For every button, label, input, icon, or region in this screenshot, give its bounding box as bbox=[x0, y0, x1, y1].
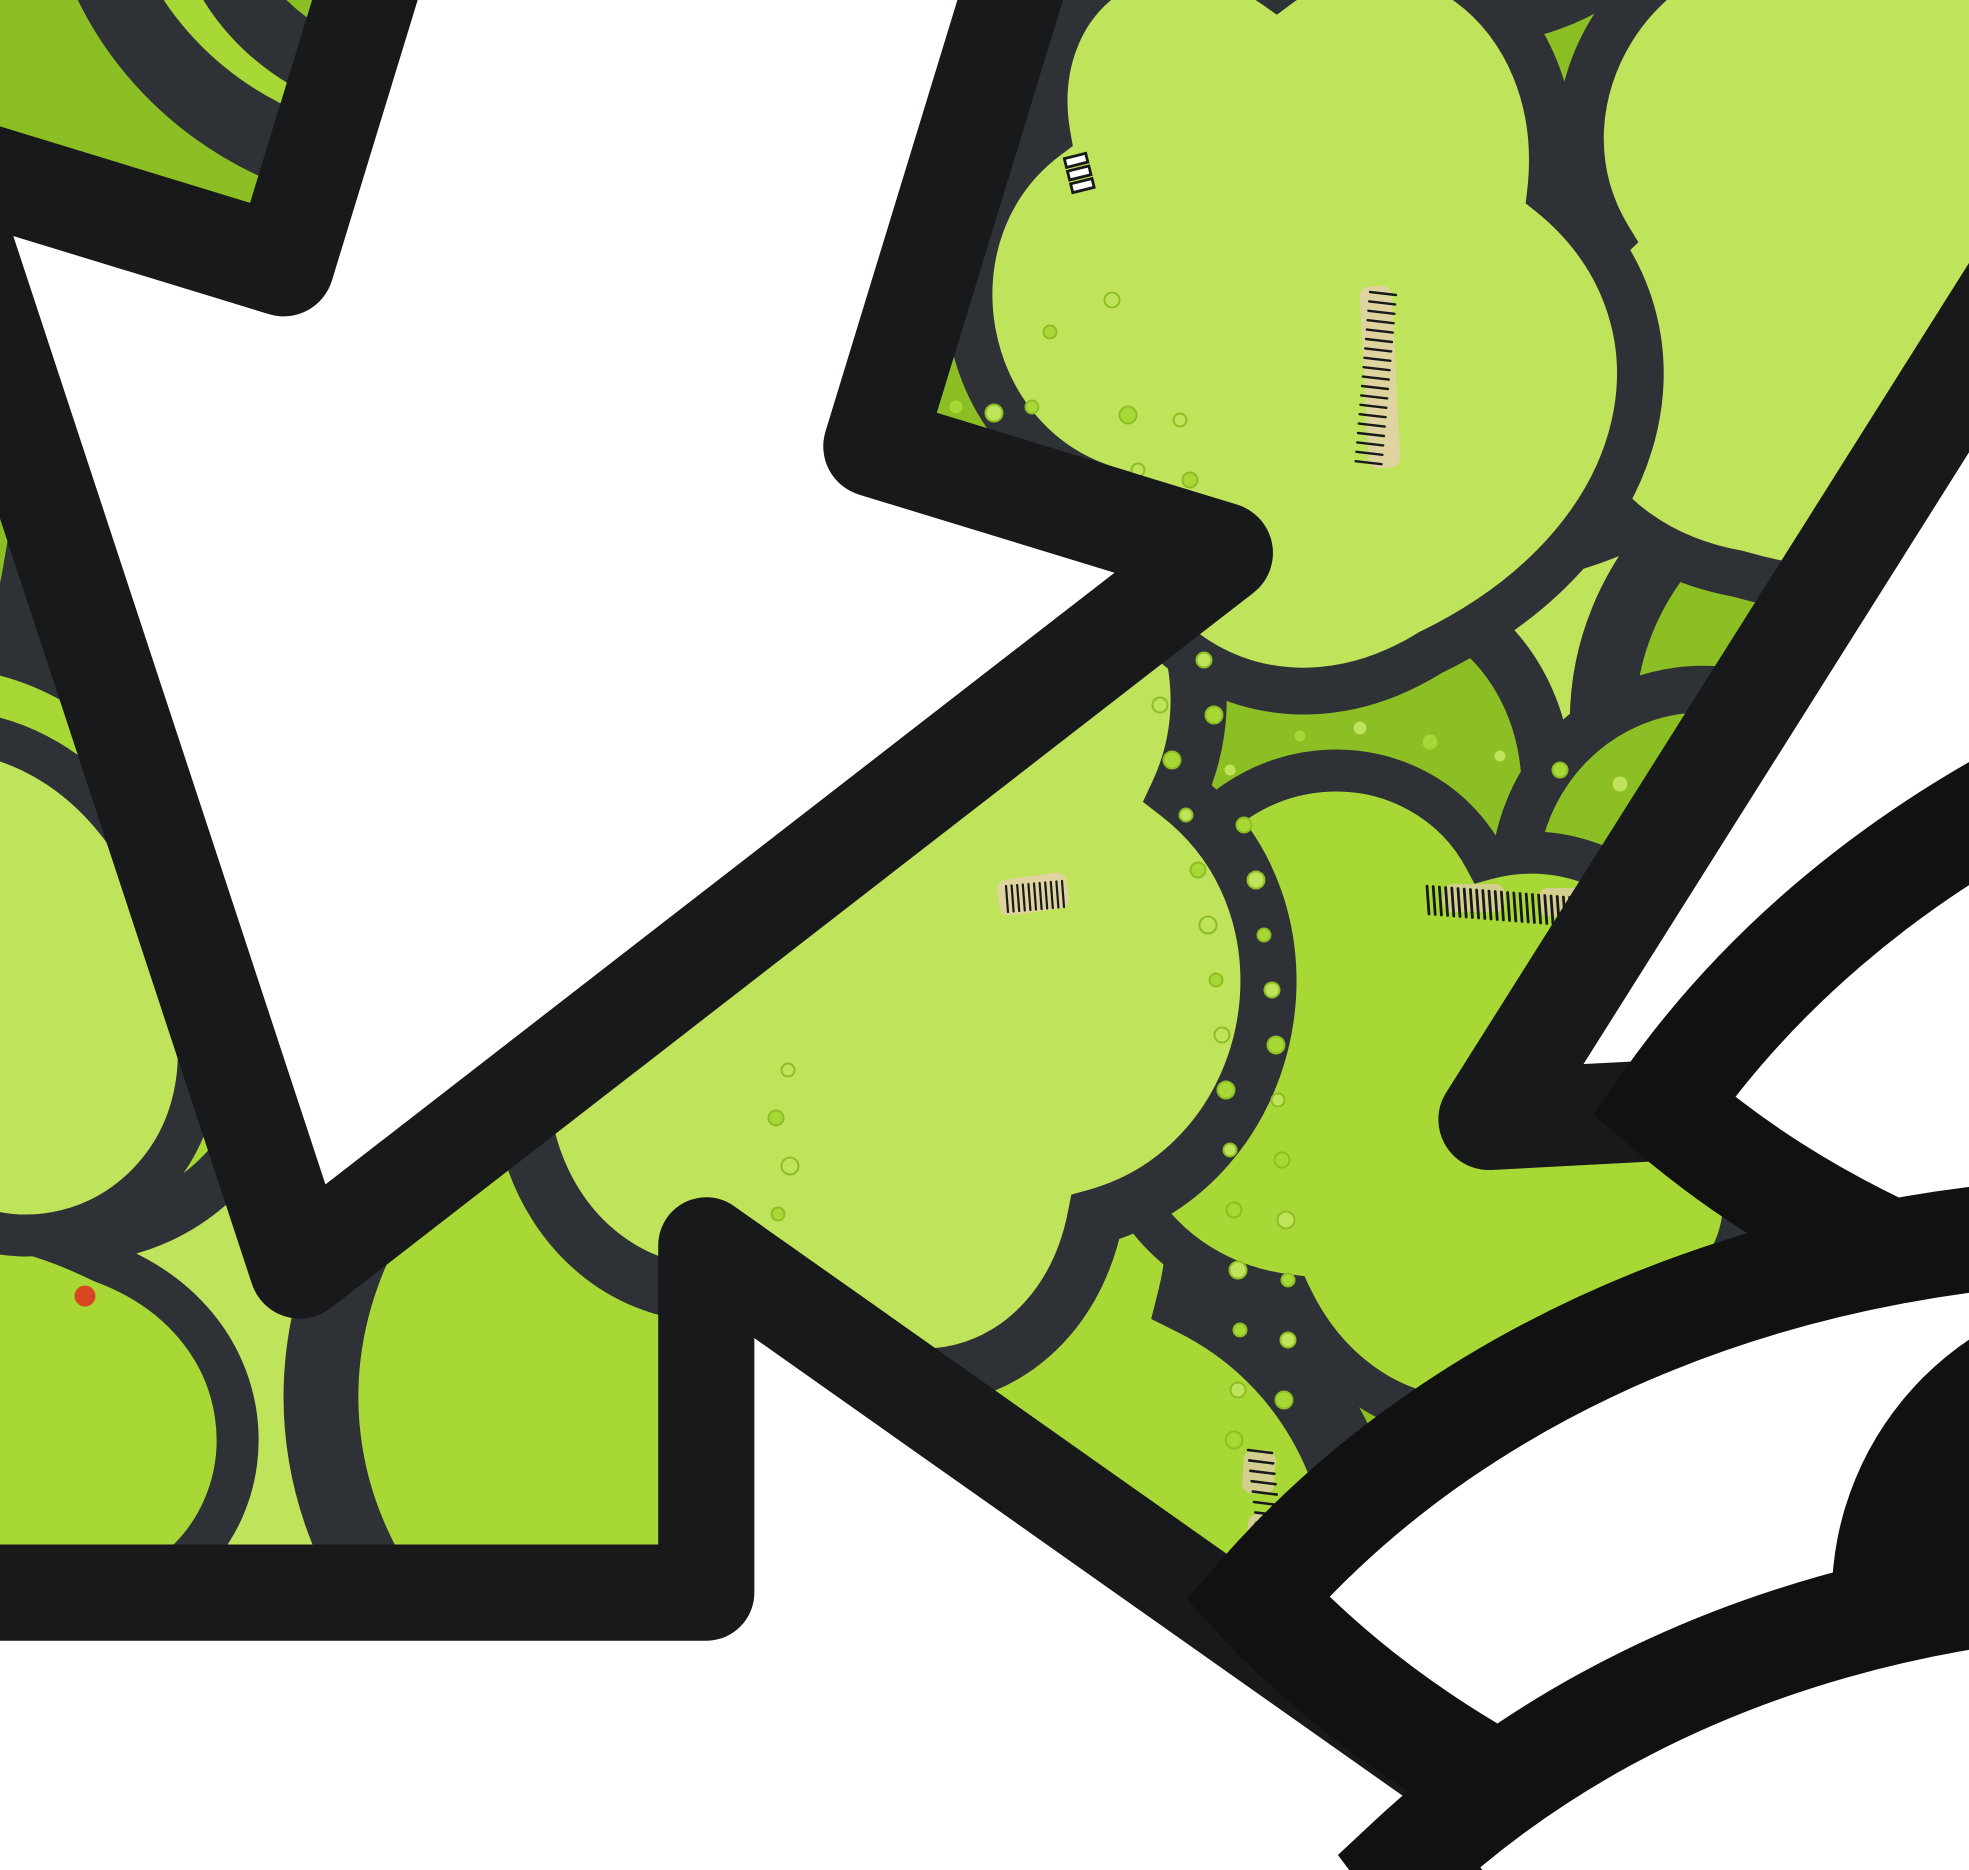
street-tree-icon bbox=[1105, 293, 1120, 308]
street-tree-icon bbox=[1191, 863, 1206, 878]
street-tree-icon bbox=[1276, 1392, 1293, 1409]
street-tree-icon bbox=[949, 400, 964, 415]
street-tree-icon bbox=[1275, 1153, 1290, 1168]
street-tree-icon bbox=[782, 1158, 799, 1175]
street-tree-icon bbox=[769, 1111, 784, 1126]
street-tree-icon bbox=[1215, 1028, 1230, 1043]
street-tree-icon bbox=[1164, 752, 1181, 769]
street-tree-icon bbox=[1200, 917, 1217, 934]
street-tree-icon bbox=[1353, 721, 1368, 736]
street-tree-icon bbox=[1265, 983, 1280, 998]
masterplan-illustration bbox=[0, 0, 1969, 1870]
street-tree-icon bbox=[1281, 1333, 1296, 1348]
masterplan-svg bbox=[0, 0, 1969, 1870]
street-tree-icon bbox=[986, 405, 1003, 422]
street-tree-icon bbox=[1258, 929, 1271, 942]
street-tree-icon bbox=[1210, 974, 1223, 987]
street-tree-icon bbox=[1026, 401, 1039, 414]
street-tree-icon bbox=[1197, 653, 1212, 668]
street-tree-icon bbox=[1231, 1383, 1246, 1398]
street-tree-icon bbox=[1226, 1432, 1243, 1449]
street-tree-icon bbox=[1230, 1262, 1247, 1279]
red-dot-marker bbox=[75, 1286, 96, 1307]
street-tree-icon bbox=[782, 1064, 795, 1077]
street-tree-icon bbox=[1183, 473, 1198, 488]
street-tree-icon bbox=[1180, 809, 1193, 822]
street-tree-icon bbox=[1218, 1082, 1235, 1099]
street-tree-icon bbox=[1237, 818, 1252, 833]
street-tree-icon bbox=[1120, 407, 1137, 424]
street-tree-icon bbox=[1248, 872, 1265, 889]
street-tree-icon bbox=[1282, 1274, 1295, 1287]
street-tree-icon bbox=[1422, 734, 1439, 751]
street-tree-icon bbox=[1272, 1094, 1285, 1107]
street-tree-icon bbox=[1174, 414, 1187, 427]
street-tree-icon bbox=[1612, 776, 1629, 793]
street-tree-icon bbox=[1044, 326, 1057, 339]
street-tree-icon bbox=[1553, 763, 1568, 778]
street-tree-icon bbox=[1153, 698, 1168, 713]
street-tree-icon bbox=[1234, 1324, 1247, 1337]
street-tree-icon bbox=[1278, 1212, 1295, 1229]
street-tree-icon bbox=[1268, 1037, 1285, 1054]
street-tree-icon bbox=[1224, 764, 1237, 777]
street-tree-icon bbox=[1206, 707, 1223, 724]
street-tree-icon bbox=[1224, 1144, 1237, 1157]
street-tree-icon bbox=[1227, 1203, 1242, 1218]
street-tree-icon bbox=[1294, 730, 1307, 743]
street-tree-icon bbox=[772, 1208, 785, 1221]
street-tree-icon bbox=[1494, 750, 1507, 763]
